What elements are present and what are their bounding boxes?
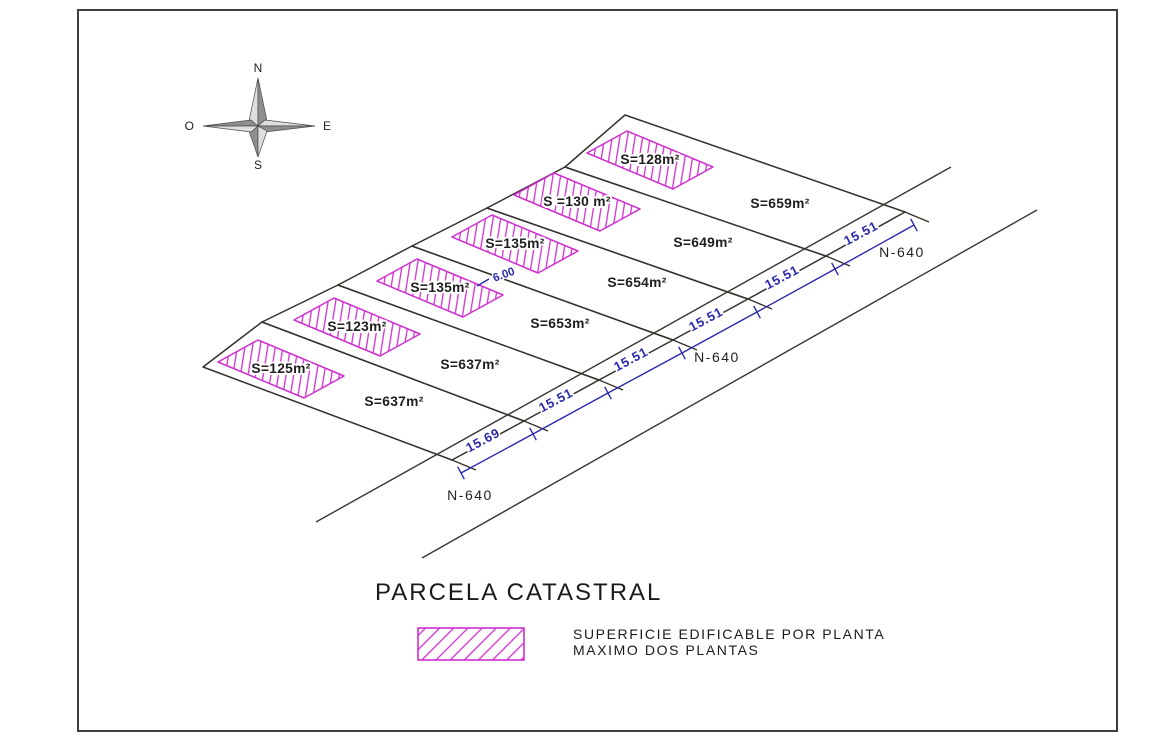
parcel-area-label: S=649m² [673, 235, 732, 250]
parcel-area-label: S=653m² [530, 316, 589, 331]
road-label: N-640 [879, 244, 925, 260]
compass-label-south: S [254, 158, 262, 172]
compass-spike-e [258, 120, 315, 126]
buildable-area-label: S=125m² [251, 361, 310, 376]
buildable-area-label: S =130 m² [543, 194, 611, 209]
cadastral-plan-drawing: NSEON-640N-640N-64015.6915.5115.5115.511… [0, 0, 1170, 738]
compass-label-west: O [185, 119, 194, 133]
division-line-extension [524, 421, 548, 431]
parcel-area-label: S=637m² [364, 394, 423, 409]
parcel-area-label: S=659m² [750, 196, 809, 211]
buildable-area-label: S=135m² [485, 236, 544, 251]
cadastral-plan-page: NSEON-640N-640N-64015.6915.5115.5115.511… [0, 0, 1170, 738]
compass-label-north: N [254, 61, 263, 75]
parcel-area-label: S=637m² [440, 357, 499, 372]
legend-swatch [418, 628, 524, 660]
compass-spike-w [203, 126, 258, 132]
buildable-area-label: S=128m² [620, 152, 679, 167]
dimension-tick [832, 263, 839, 275]
dimension-tick [911, 219, 918, 231]
dimension-tick [605, 387, 612, 399]
compass-spike-s [258, 126, 267, 157]
dimension-tick [530, 428, 537, 440]
legend-description-line2: MAXIMO DOS PLANTAS [573, 642, 759, 658]
legend-title: PARCELA CATASTRAL [375, 579, 662, 606]
dimension-tick [458, 467, 465, 479]
road-label: N-640 [447, 487, 493, 503]
division-line-extension [452, 460, 476, 470]
dimension-tick [754, 306, 761, 318]
compass-label-east: E [323, 119, 331, 133]
compass-spike-w [203, 120, 258, 126]
legend-description-line1: SUPERFICIE EDIFICABLE POR PLANTA [573, 626, 885, 642]
division-line-extension [599, 380, 623, 390]
parcel-area-label: S=654m² [607, 275, 666, 290]
dimension-tick [679, 347, 686, 359]
compass-spike-n [249, 78, 258, 126]
buildable-area-label: S=135m² [410, 280, 469, 295]
buildable-area-label: S=123m² [327, 319, 386, 334]
road-label: N-640 [694, 349, 740, 365]
division-line-extension [826, 256, 850, 266]
division-line-extension [905, 212, 929, 222]
compass-rose [203, 78, 315, 157]
compass-spike-n [258, 78, 267, 126]
division-line-extension [748, 299, 772, 309]
